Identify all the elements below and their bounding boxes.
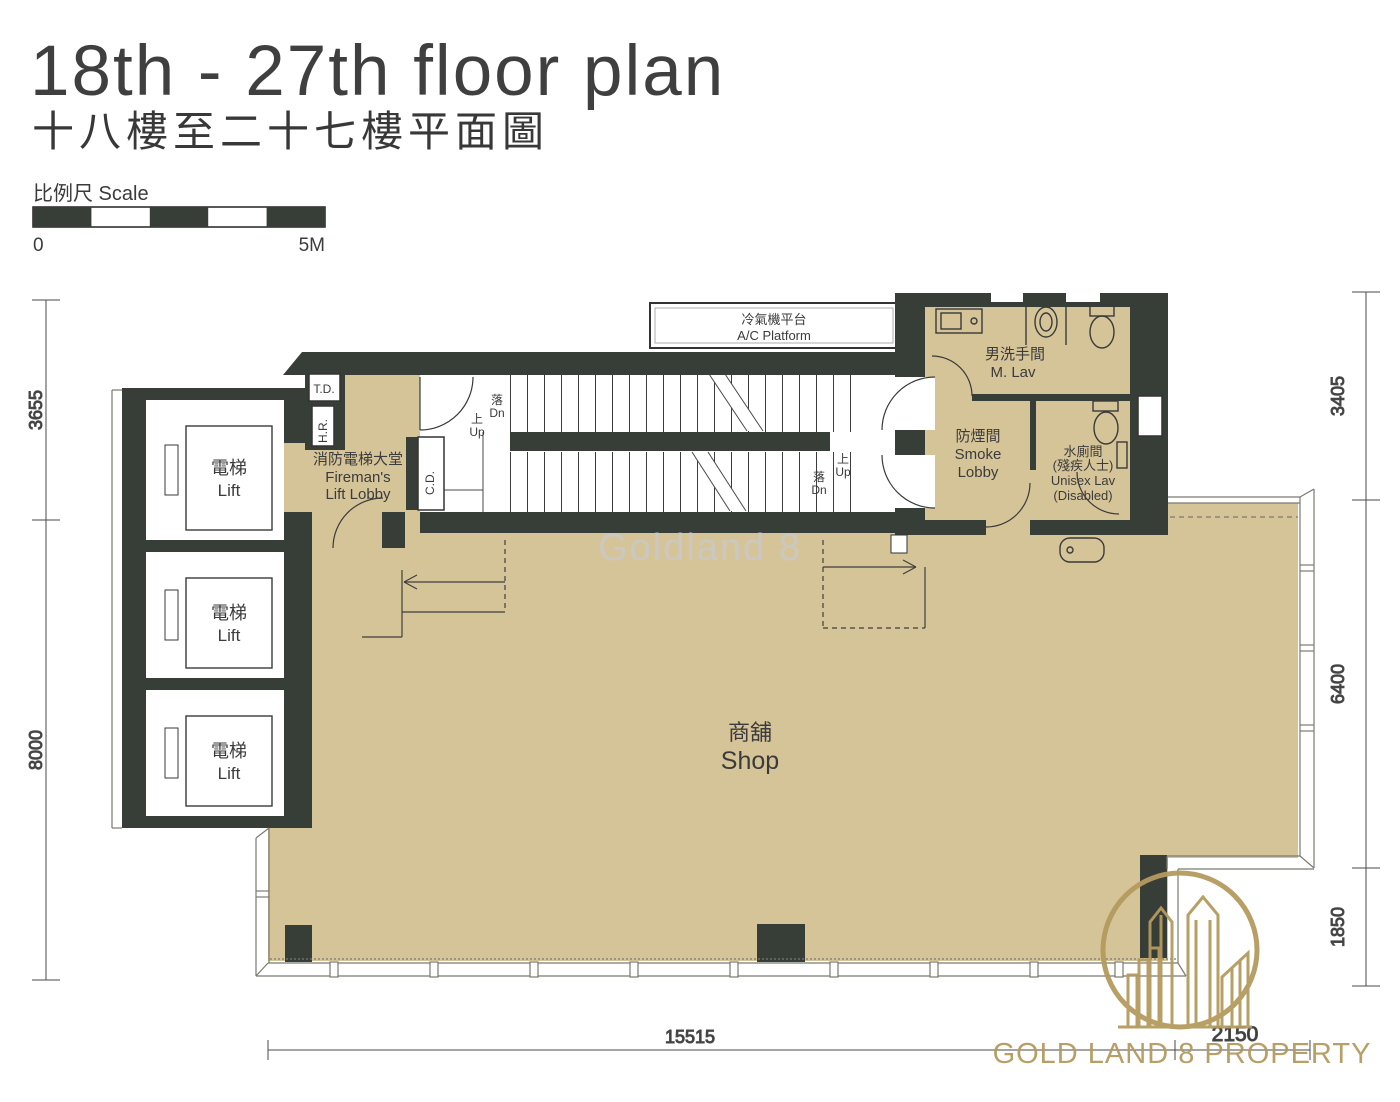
stair-up-label-zh: 上 <box>471 412 483 426</box>
unisex-lav-label-zh: 水廁間 <box>1063 444 1102 459</box>
lift-label-zh: 電梯 <box>211 741 247 761</box>
wall-stub <box>382 512 405 548</box>
dimension-right: 3405 6400 1850 <box>1328 292 1380 986</box>
mullion <box>1030 962 1038 977</box>
stair-down-label-en: Dn <box>811 483 826 497</box>
floor-plan-canvas: 18th - 27th floor plan 十八樓至二十七樓平面圖 比例尺 S… <box>0 0 1400 1102</box>
stair-down-label-zh: 落 <box>491 393 503 407</box>
dim-right-2: 6400 <box>1328 664 1348 704</box>
stair-center-wall <box>510 432 830 451</box>
scale-label: 比例尺 Scale <box>33 182 149 205</box>
lavatory-block: 男洗手間 M. Lav 防煙間 Smoke Lobby 水廁間 (殘疾人士) U… <box>891 293 1168 562</box>
shop: 商舖 Shop <box>721 720 779 775</box>
scale-segment <box>33 207 91 227</box>
dimension-left: 3655 8000 <box>26 300 60 980</box>
logo-text: GOLD LAND 8 PROPERTY <box>993 1038 1372 1070</box>
doorway <box>895 455 935 508</box>
page-title: 18th - 27th floor plan <box>30 32 725 111</box>
lift-door <box>165 590 178 640</box>
dim-right-3: 1850 <box>1328 907 1348 947</box>
wall-stub <box>1140 855 1167 958</box>
smoke-lobby-label-en: Smoke <box>955 446 1002 463</box>
unisex-lav-label-en: (Disabled) <box>1053 488 1112 503</box>
unisex-lav-label-zh: (殘疾人士) <box>1053 458 1114 473</box>
lift-door <box>165 728 178 778</box>
vent-slot <box>1066 293 1100 302</box>
doorway <box>895 377 935 430</box>
scale-max: 5M <box>299 235 325 256</box>
dim-left-1: 3655 <box>26 390 46 430</box>
header: 18th - 27th floor plan 十八樓至二十七樓平面圖 <box>30 32 725 155</box>
dim-right-1: 3405 <box>1328 376 1348 416</box>
dim-bottom-1: 15515 <box>665 1027 715 1047</box>
lift-label-en: Lift <box>218 626 241 645</box>
scale-min: 0 <box>33 235 44 256</box>
watermark-text: Goldland 8 <box>598 527 802 569</box>
fireman-lobby: 消防電梯大堂 Fireman's Lift Lobby <box>313 451 403 503</box>
fireman-lobby-label-zh: 消防電梯大堂 <box>313 451 403 468</box>
mullion <box>830 962 838 977</box>
shop-label-zh: 商舖 <box>728 720 772 745</box>
stair-down-label-zh: 落 <box>813 470 825 484</box>
top-wall <box>283 352 935 375</box>
stair-up-label-en: Up <box>469 425 485 439</box>
ac-platform-label-zh: 冷氣機平台 <box>741 312 806 327</box>
fireman-lobby-label-en: Lift Lobby <box>325 486 391 503</box>
scale-bar: 比例尺 Scale 0 5M <box>33 182 325 256</box>
ac-platform: 冷氣機平台 A/C Platform <box>650 303 898 348</box>
lift-label-en: Lift <box>218 764 241 783</box>
lift-label-zh: 電梯 <box>211 603 247 623</box>
hr-label: H.R. <box>316 419 330 443</box>
stair-up-label-zh: 上 <box>837 452 849 466</box>
mullion <box>730 962 738 977</box>
stair-treads-upper <box>510 374 856 432</box>
lift-label-en: Lift <box>218 481 241 500</box>
doorway <box>986 520 1030 535</box>
wall-stub <box>757 924 805 962</box>
mullion <box>530 962 538 977</box>
stair-up-label-en: Up <box>835 465 851 479</box>
scale-segment <box>267 207 325 227</box>
lift-label-zh: 電梯 <box>211 458 247 478</box>
page-title-chinese: 十八樓至二十七樓平面圖 <box>32 108 549 155</box>
duct-box <box>891 535 907 553</box>
smoke-lobby-label-zh: 防煙間 <box>955 428 1000 445</box>
duct-box <box>1138 396 1162 436</box>
cd-label: C.D. <box>423 471 437 495</box>
partition-wall <box>1030 401 1036 470</box>
lift-door <box>165 445 178 495</box>
dim-left-2: 8000 <box>26 730 46 770</box>
mullion <box>630 962 638 977</box>
m-lav-label-zh: 男洗手間 <box>985 346 1045 363</box>
fireman-lobby-label-en: Fireman's <box>325 469 390 486</box>
mullion <box>330 962 338 977</box>
mullion <box>930 962 938 977</box>
td-label: T.D. <box>313 382 334 396</box>
shop-floor <box>1168 503 1298 858</box>
ac-platform-label-en: A/C Platform <box>737 328 811 343</box>
shaft-wall <box>406 437 418 510</box>
shop-label-en: Shop <box>721 747 779 775</box>
lobby-floor <box>284 443 312 512</box>
wall-stub <box>285 925 312 962</box>
vent-slot <box>991 293 1023 302</box>
unisex-lav-label-en: Unisex Lav <box>1051 473 1116 488</box>
partition-wall <box>972 394 1130 401</box>
m-lav-label-en: M. Lav <box>990 364 1036 381</box>
mullion <box>1115 962 1123 977</box>
staircase: 落 Dn 上 Up 上 Up 落 Dn <box>420 373 895 512</box>
mullion <box>430 962 438 977</box>
smoke-lobby-label-en: Lobby <box>958 464 999 481</box>
lift-bank: 電梯 Lift 電梯 Lift 電梯 Lift <box>122 388 312 828</box>
stair-down-label-en: Dn <box>489 406 504 420</box>
stair-treads-lower <box>510 452 856 512</box>
scale-segment <box>150 207 208 227</box>
